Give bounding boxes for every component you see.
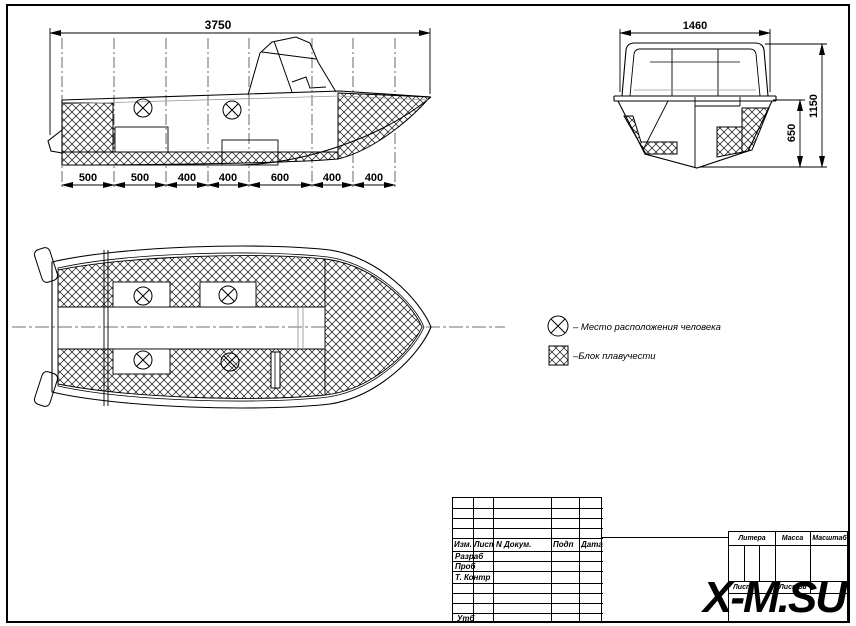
dim-1460 bbox=[620, 29, 770, 92]
dim-3750-label: 3750 bbox=[205, 18, 232, 32]
buoyancy-block-bow bbox=[338, 93, 430, 159]
buoyancy-bow-area bbox=[325, 259, 422, 395]
windshield-outer bbox=[622, 43, 768, 96]
stern-bracket-bottom bbox=[33, 370, 59, 407]
buoyancy-block-stern bbox=[62, 103, 113, 152]
legend-buoyancy-label: –Блок плавучести bbox=[572, 351, 656, 362]
windshield-side bbox=[248, 37, 336, 95]
dim-seg-label: 400 bbox=[365, 172, 383, 184]
tb-header-ndokum: N Докум. bbox=[496, 540, 550, 550]
tb-header-podp: Подп bbox=[553, 540, 579, 550]
stern-bracket-top bbox=[33, 246, 59, 283]
seat-box-1 bbox=[115, 127, 168, 152]
hatch-square-icon bbox=[549, 346, 568, 365]
buoyancy-band-bottom bbox=[58, 349, 325, 398]
person-location-symbol bbox=[548, 316, 568, 336]
plan-view bbox=[12, 246, 505, 408]
dim-seg-label: 400 bbox=[178, 172, 196, 184]
buoyancy-band-top bbox=[58, 256, 325, 307]
dim-seg-label: 500 bbox=[131, 172, 149, 184]
buoyancy-block-right bbox=[717, 108, 769, 157]
tb-massa: Масса bbox=[775, 534, 810, 544]
dim-650-label: 650 bbox=[786, 124, 798, 142]
legend-person-label: – Место расположения человека bbox=[572, 322, 721, 333]
tb-row-prov: Проб bbox=[455, 562, 495, 572]
tb-header-izm: Изм. bbox=[454, 540, 473, 550]
tb-header-data: Дата bbox=[581, 540, 603, 550]
dim-1460-label: 1460 bbox=[683, 20, 707, 32]
person-location-symbol bbox=[223, 101, 241, 119]
legend: – Место расположения человека –Блок плав… bbox=[548, 316, 721, 365]
tb-row-tkontr: Т. Контр bbox=[455, 573, 499, 583]
dim-seg-label: 600 bbox=[271, 172, 289, 184]
tank-box bbox=[271, 352, 280, 388]
watermark-xmsu: X-M.SU bbox=[703, 575, 856, 621]
tb-litera: Литера bbox=[729, 534, 775, 544]
transom-view: 1460 1150 650 bbox=[614, 20, 827, 168]
windshield-inner bbox=[630, 49, 760, 96]
blueprint-page: 3750 500 500 400 400 600 400 400 bbox=[0, 0, 856, 626]
dim-seg-label: 500 bbox=[79, 172, 97, 184]
dim-1150-label: 1150 bbox=[808, 94, 820, 118]
tb-masshtab: Масштаб bbox=[810, 534, 849, 544]
tb-row-utv: Утб bbox=[457, 614, 497, 624]
dim-seg-label: 400 bbox=[219, 172, 237, 184]
title-block-left: Изм. Лист N Докум. Подп Дата Разраб Проб… bbox=[452, 497, 602, 622]
side-view: 3750 500 500 400 400 600 400 400 bbox=[48, 18, 431, 190]
tb-row-razrab: Разраб bbox=[455, 552, 495, 562]
dim-seg-label: 400 bbox=[323, 172, 341, 184]
tb-header-list: Лист bbox=[474, 540, 493, 550]
